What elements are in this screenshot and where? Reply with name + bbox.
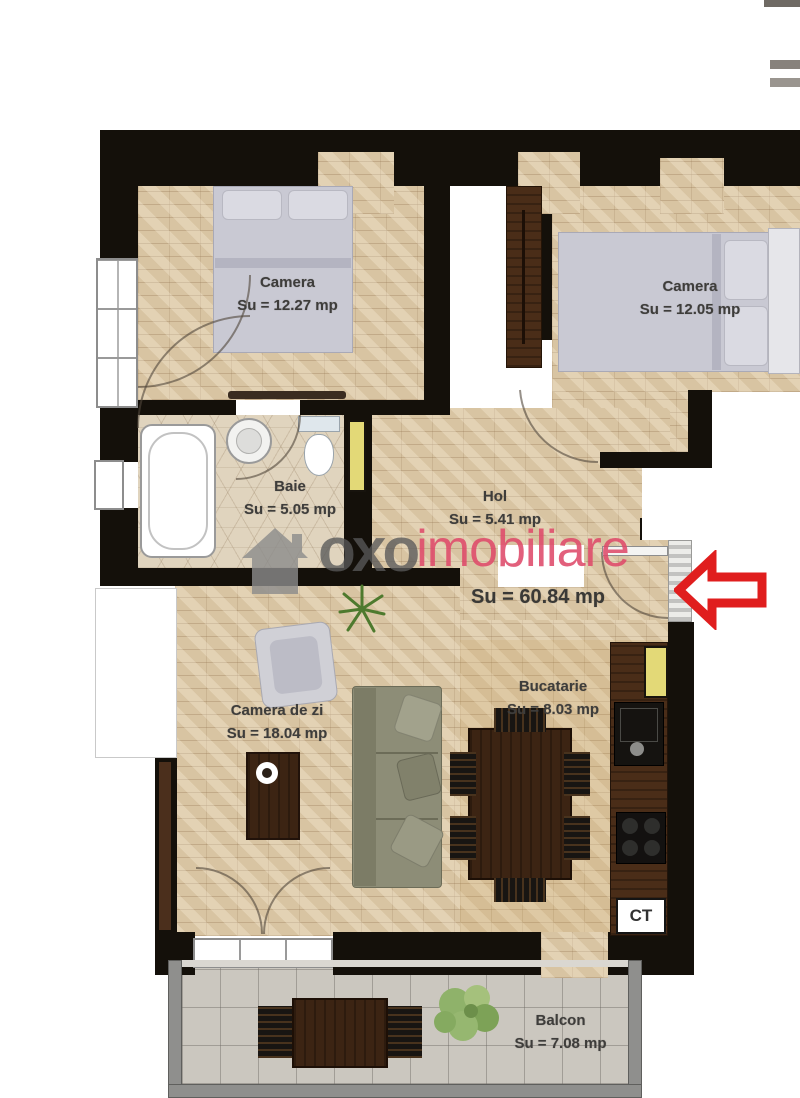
kitchen-label: Bucatarie Su = 8.03 mp	[473, 676, 633, 721]
entrance-arrow-icon	[674, 550, 768, 630]
kitchen-sink-drain	[630, 742, 644, 756]
bed-1-bench	[228, 391, 346, 399]
coffee-cup-center	[262, 768, 272, 778]
room-name: Camera	[205, 272, 370, 295]
balcony-label: Balcon Su = 7.08 mp	[478, 1010, 643, 1055]
room-area: Su = 18.04 mp	[188, 723, 366, 746]
bath-sink-basin	[236, 428, 262, 454]
wall-bedroom-1-bottom-a	[136, 400, 236, 415]
hallway-label: Hol Su = 5.41 mp	[420, 486, 570, 531]
bedroom-2-wardrobe-right	[768, 228, 800, 374]
room-area: Su = 8.03 mp	[473, 699, 633, 722]
dining-chair-right-2	[564, 816, 590, 860]
room-name: Balcon	[478, 1010, 643, 1033]
room-area: Su = 12.05 mp	[610, 299, 770, 322]
room-name: Camera	[610, 276, 770, 299]
room-area: Su = 5.41 mp	[420, 509, 570, 532]
dining-chair-right-1	[564, 752, 590, 796]
balcony-rail-bottom	[168, 1084, 642, 1098]
wall-bottom-b	[333, 932, 541, 975]
stove-burner-3	[622, 840, 638, 856]
dining-chair-left-2	[450, 816, 476, 860]
kitchen-window-yellow	[644, 646, 668, 698]
crop-artifact-1	[764, 0, 800, 7]
window-living-west	[95, 588, 177, 758]
room-name: Baie	[210, 476, 370, 499]
wall-top-brick-pillar-3	[660, 158, 724, 214]
watermark-brand: oxo	[318, 520, 416, 582]
wardrobe-shaft-handle	[522, 210, 525, 344]
bedroom-1-label: Camera Su = 12.27 mp	[205, 272, 370, 317]
house-icon	[232, 520, 318, 602]
window-bedroom-1-west	[96, 258, 138, 408]
wall-left-mid	[100, 406, 138, 462]
room-name: Hol	[420, 486, 570, 509]
crop-artifact-3	[770, 78, 800, 87]
armchair-cushion	[269, 635, 323, 694]
toilet-tank	[298, 416, 340, 432]
bed-1-pillow-right	[288, 190, 348, 220]
total-area-label: Su = 60.84 mp	[448, 586, 628, 609]
window-bathroom-west	[94, 460, 124, 510]
room-area: Su = 12.27 mp	[205, 295, 370, 318]
bed-1-fold-line	[215, 258, 351, 268]
living-room-label: Camera de zi Su = 18.04 mp	[188, 700, 366, 745]
dining-table	[468, 728, 572, 880]
central-heating-label: CT	[630, 906, 653, 926]
dining-chair-bottom	[494, 878, 546, 902]
room-area: Su = 5.05 mp	[210, 499, 370, 522]
toilet-bowl	[304, 434, 334, 476]
entry-nook	[642, 468, 700, 540]
crop-artifact-2	[770, 60, 800, 69]
bathtub-inner	[148, 432, 208, 550]
wall-bedroom-1-bottom-b	[300, 400, 424, 415]
wall-bedroom-2-right-low	[688, 390, 712, 452]
wall-right-lower	[668, 622, 694, 940]
wall-bottom-c	[608, 932, 694, 975]
bathroom-label: Baie Su = 5.05 mp	[210, 476, 370, 521]
central-heating-box: CT	[616, 898, 666, 934]
stove-burner-4	[644, 840, 660, 856]
stove-burner-1	[622, 818, 638, 834]
balcony-rail-left	[168, 960, 182, 1098]
room-name: Bucatarie	[473, 676, 633, 699]
balcony-table	[292, 998, 388, 1068]
balcony-chair-left	[258, 1006, 292, 1058]
room-name: Camera de zi	[188, 700, 366, 723]
room-area: Su = 7.08 mp	[478, 1033, 643, 1056]
bedroom-2-label: Camera Su = 12.05 mp	[610, 276, 770, 321]
bed-1-pillow-left	[222, 190, 282, 220]
shaft-area	[448, 186, 506, 415]
balcony-chair-right	[388, 1006, 422, 1058]
balcony-door-gap-floor	[541, 932, 608, 978]
stove-burner-2	[644, 818, 660, 834]
dining-chair-left-1	[450, 752, 476, 796]
living-left-door-frame	[159, 762, 171, 930]
balcony-threshold-strip	[182, 960, 628, 967]
wall-bedroom-2-bottom	[600, 452, 712, 468]
wall-shaft-left	[424, 186, 450, 415]
wall-left-upper	[100, 186, 138, 260]
floor-plan-canvas: CT	[0, 0, 800, 1098]
